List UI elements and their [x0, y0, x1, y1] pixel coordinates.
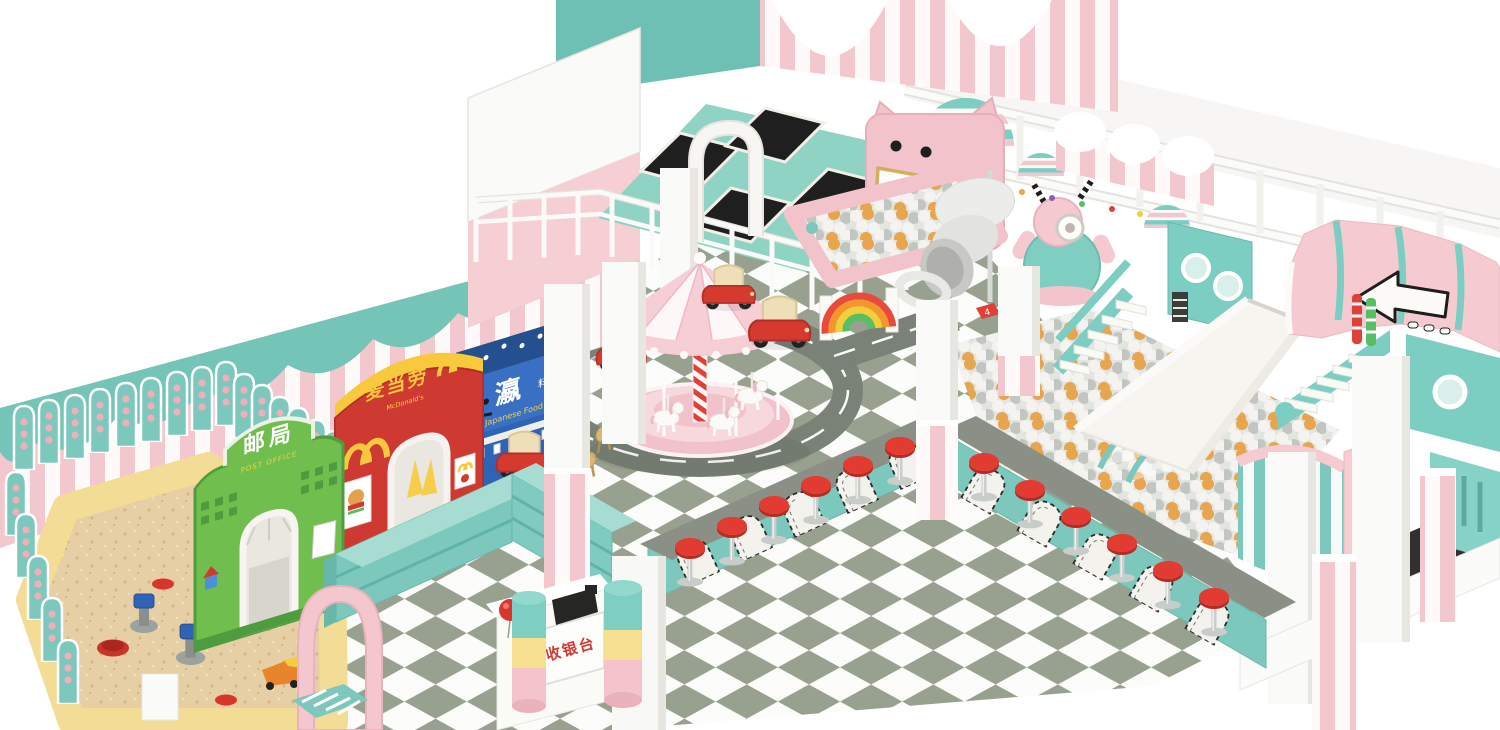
- white-box: [142, 674, 178, 720]
- red-disc-1: [152, 579, 174, 590]
- pillar-counter-corner: [916, 300, 958, 520]
- pillar-ballpit: [998, 266, 1040, 396]
- desk-column-right: [604, 580, 642, 708]
- mascot-poster: [455, 453, 475, 489]
- scene-svg: 4: [0, 0, 1500, 730]
- wall-poster: [312, 521, 336, 559]
- burger-poster: [341, 475, 371, 530]
- desk-column-left: [512, 591, 546, 713]
- playground-render: 4: [0, 0, 1500, 730]
- red-disc-2: [215, 695, 237, 706]
- tv-eye-right: [921, 147, 932, 158]
- striped-column: [1312, 560, 1356, 730]
- striped-column: [1420, 474, 1456, 622]
- pillar-center-2: [602, 262, 646, 444]
- tv-eye-left: [891, 141, 902, 152]
- pillar-center-1: [544, 284, 590, 604]
